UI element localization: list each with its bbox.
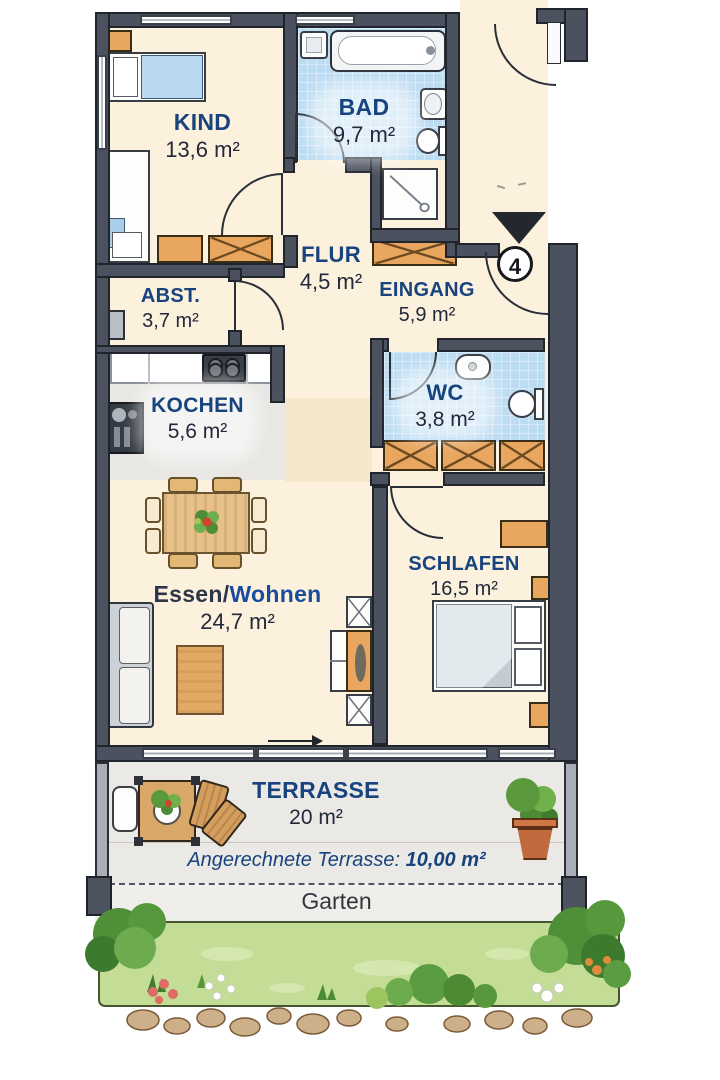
- room-name-wohnen-suffix: Wohnen: [229, 581, 321, 607]
- room-area-flur: 4,5 m²: [282, 270, 380, 294]
- hall-wardrobe-1: [383, 440, 438, 471]
- kind-bed-duvet: [141, 55, 203, 99]
- sliding-door-arrow-line: [268, 740, 314, 742]
- kind-desk: [157, 235, 203, 263]
- room-name-bad: BAD: [315, 95, 413, 120]
- sideboard-tv: [346, 630, 372, 692]
- wall-schlafen-top-right: [443, 472, 545, 486]
- wall-bad-right: [445, 12, 460, 258]
- kind-nightstand: [108, 30, 132, 52]
- window-schlafen: [498, 748, 556, 759]
- hall-wardrobe-3: [499, 440, 545, 471]
- room-label-wc: WC 3,8 m²: [400, 381, 490, 431]
- terrace-note-label: Angerechnete Terrasse:: [187, 849, 400, 871]
- room-label-schlafen: SCHLAFEN 16,5 m²: [400, 553, 528, 600]
- bad-sink-basin: [306, 37, 322, 53]
- bed-pillow-2: [514, 648, 542, 686]
- wall-building-corner-v: [564, 8, 588, 62]
- flur-zone-floor: [285, 398, 372, 482]
- wall-living-schlafen-divider: [372, 486, 388, 745]
- kitchen-counter-seam: [246, 352, 248, 384]
- room-area-wc: 3,8 m²: [400, 408, 490, 431]
- garden-illustration: [77, 896, 643, 1066]
- kitchen-counter: [110, 352, 275, 384]
- terrace-table-leg: [134, 837, 143, 846]
- unit-number-badge: 4: [497, 246, 533, 282]
- window-kind-top: [140, 15, 232, 25]
- terrace-chair-white: [112, 786, 138, 832]
- wall-kitchen-top: [95, 345, 285, 354]
- sideboard-box-bottom: [346, 694, 372, 726]
- window-mullion: [343, 747, 349, 760]
- dining-chair: [251, 497, 267, 523]
- terrace-divider-line: [109, 842, 564, 843]
- wall-kind-bottom: [95, 263, 285, 278]
- kitchen-counter-seam: [148, 352, 150, 384]
- floorplan: 4 KIND 13,6 m² BAD 9,7 m² FLUR 4,5 m² EI…: [0, 0, 720, 1080]
- room-name-flur: FLUR: [282, 243, 380, 267]
- window-kind-left: [97, 55, 107, 150]
- room-area-wohnen: 24,7 m²: [140, 610, 335, 634]
- room-area-bad: 9,7 m²: [315, 123, 413, 147]
- schlafen-dresser: [500, 520, 548, 548]
- room-name-wohnen-prefix: Essen/: [153, 581, 229, 607]
- sofa-cushion: [119, 667, 150, 724]
- entrance-arrow-icon: [492, 212, 546, 244]
- bathtub-basin: [338, 36, 436, 65]
- wall-schlafen-top-left: [370, 472, 390, 486]
- wall-right: [548, 243, 578, 762]
- room-label-flur: FLUR 4,5 m²: [282, 243, 380, 294]
- bathtub-drain: [426, 46, 435, 55]
- stove: [202, 354, 246, 382]
- room-label-kochen: KOCHEN 5,6 m²: [140, 394, 255, 443]
- room-label-eingang: EINGANG 5,9 m²: [373, 279, 481, 326]
- room-name-kind: KIND: [130, 110, 275, 135]
- room-area-abst: 3,7 m²: [118, 310, 223, 332]
- terrace-name: TERRASSE: [206, 778, 426, 803]
- unit-number: 4: [509, 254, 521, 279]
- terrace-table-leg: [191, 837, 200, 846]
- window-mullion: [253, 747, 259, 760]
- wall-shower-bottom: [370, 228, 460, 243]
- wall-kitchen-right: [270, 345, 285, 403]
- window-bad-top: [295, 15, 355, 25]
- kitchen-appliance: [106, 402, 144, 454]
- dining-chair: [168, 553, 198, 569]
- hall-wardrobe-2: [441, 440, 496, 471]
- terrace-note-value: 10,00 m²: [406, 849, 486, 871]
- potted-plant-rim: [512, 818, 558, 828]
- wall-bad-bottom-stub: [283, 157, 295, 173]
- wall-wc-top-right: [437, 338, 545, 352]
- bed-pillow-1: [514, 606, 542, 644]
- sliding-door-arrow-icon: [312, 735, 323, 747]
- kind-bed-pillow: [113, 57, 138, 97]
- room-name-schlafen: SCHLAFEN: [400, 553, 528, 575]
- terrace-table-leg: [134, 776, 143, 785]
- bad-washbasin-bowl: [424, 93, 442, 115]
- sideboard-box-top: [346, 596, 372, 628]
- room-name-kochen: KOCHEN: [140, 394, 255, 417]
- window-terrace-door: [142, 748, 488, 759]
- potted-plant-foliage: [506, 778, 540, 812]
- kind-chest: [208, 235, 273, 263]
- room-label-kind: KIND 13,6 m²: [130, 110, 275, 162]
- dining-chair: [251, 528, 267, 554]
- room-area-schlafen: 16,5 m²: [400, 578, 528, 600]
- room-name-eingang: EINGANG: [373, 279, 481, 301]
- room-name-abst: ABST.: [118, 285, 223, 307]
- kind-wardrobe-detail-2: [112, 232, 142, 258]
- dining-chair: [212, 477, 242, 493]
- room-area-eingang: 5,9 m²: [373, 304, 481, 326]
- room-area-kochen: 5,6 m²: [140, 420, 255, 443]
- table-centerpiece: [190, 505, 224, 539]
- dining-chair: [212, 553, 242, 569]
- room-label-abst: ABST. 3,7 m²: [118, 285, 223, 332]
- coffee-table: [176, 645, 224, 715]
- terrace-label: TERRASSE 20 m²: [206, 778, 426, 829]
- room-area-kind: 13,6 m²: [130, 138, 275, 162]
- wc-sink-drain: [468, 362, 477, 371]
- shower: [382, 168, 438, 220]
- wall-wc-left: [370, 338, 384, 448]
- room-label-bad: BAD 9,7 m²: [315, 95, 413, 147]
- dining-chair: [168, 477, 198, 493]
- dining-chair: [145, 497, 161, 523]
- room-label-wohnen: Essen/Wohnen 24,7 m²: [140, 582, 335, 634]
- room-name-wohnen: Essen/Wohnen: [140, 582, 335, 607]
- room-name-wc: WC: [400, 381, 490, 405]
- wc-toilet: [508, 390, 536, 418]
- garten-label: Garten: [95, 888, 578, 915]
- dining-chair: [145, 528, 161, 554]
- bad-toilet: [416, 128, 440, 154]
- terrace-note: Angerechnete Terrasse: 10,00 m²: [95, 849, 578, 872]
- terrace-plant-flower: [165, 800, 172, 807]
- terrace-area: 20 m²: [206, 806, 426, 829]
